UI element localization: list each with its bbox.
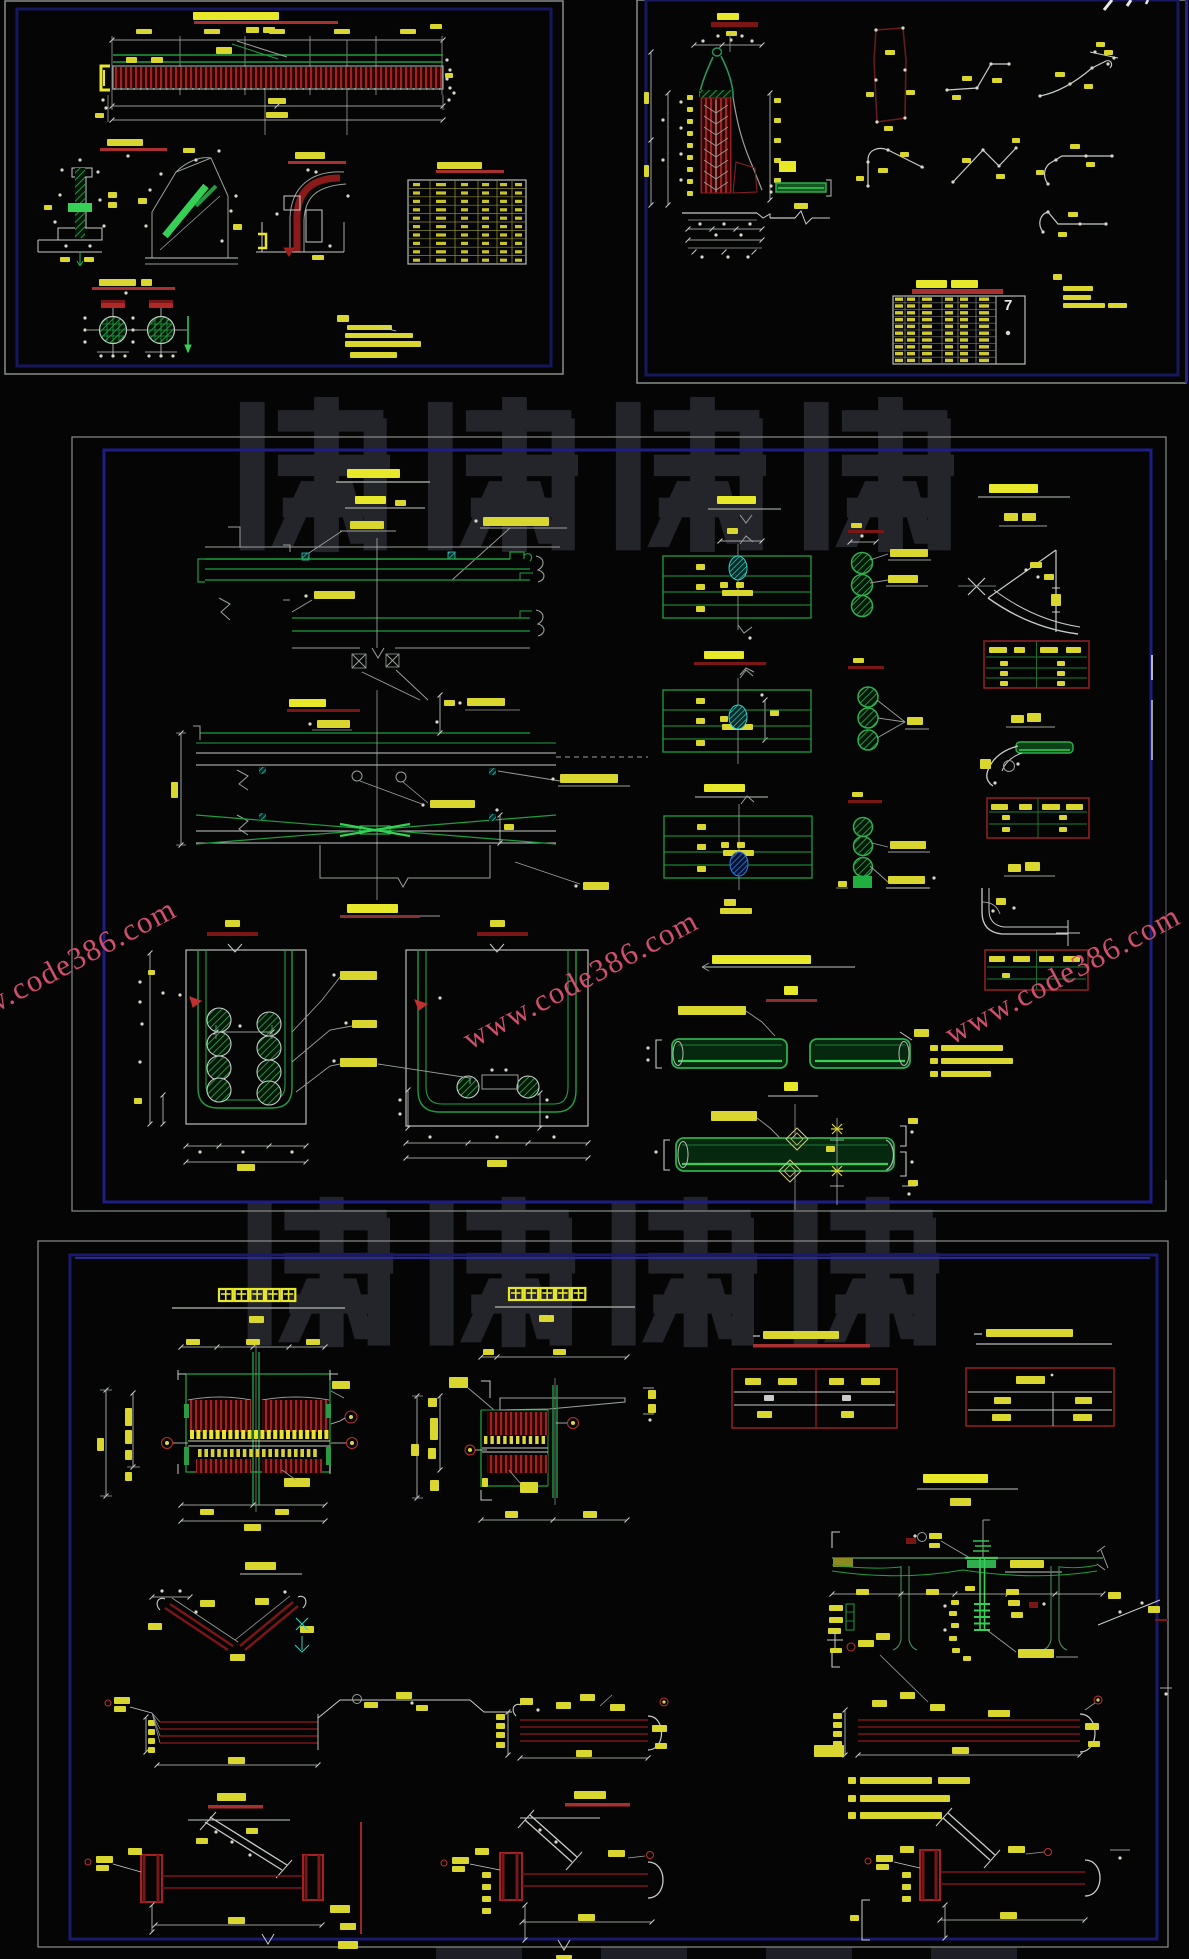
svg-text:7: 7	[1004, 297, 1012, 314]
